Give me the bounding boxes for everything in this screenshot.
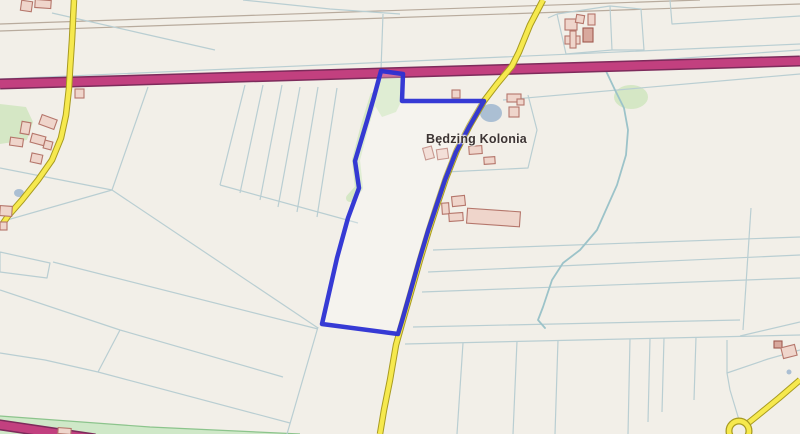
map-viewport[interactable]: Będzing Kolonia [0, 0, 800, 434]
building [517, 99, 524, 105]
building [30, 153, 43, 164]
building [58, 428, 71, 434]
building [75, 89, 84, 98]
building [588, 14, 595, 25]
map-canvas[interactable] [0, 0, 800, 434]
building [509, 107, 519, 117]
building [0, 222, 7, 230]
building [469, 146, 483, 155]
building [583, 28, 593, 42]
building [35, 0, 52, 9]
building [452, 90, 460, 98]
building [10, 137, 24, 147]
building [570, 31, 576, 48]
building [774, 341, 782, 348]
building [449, 213, 464, 222]
building [575, 14, 584, 23]
building [442, 203, 450, 214]
place-label: Będzing Kolonia [426, 132, 527, 146]
building [467, 208, 521, 227]
building [452, 195, 466, 206]
pond [787, 370, 792, 375]
building [0, 206, 12, 217]
building [20, 121, 31, 134]
building [43, 140, 53, 150]
building [484, 157, 495, 165]
building [20, 0, 32, 11]
